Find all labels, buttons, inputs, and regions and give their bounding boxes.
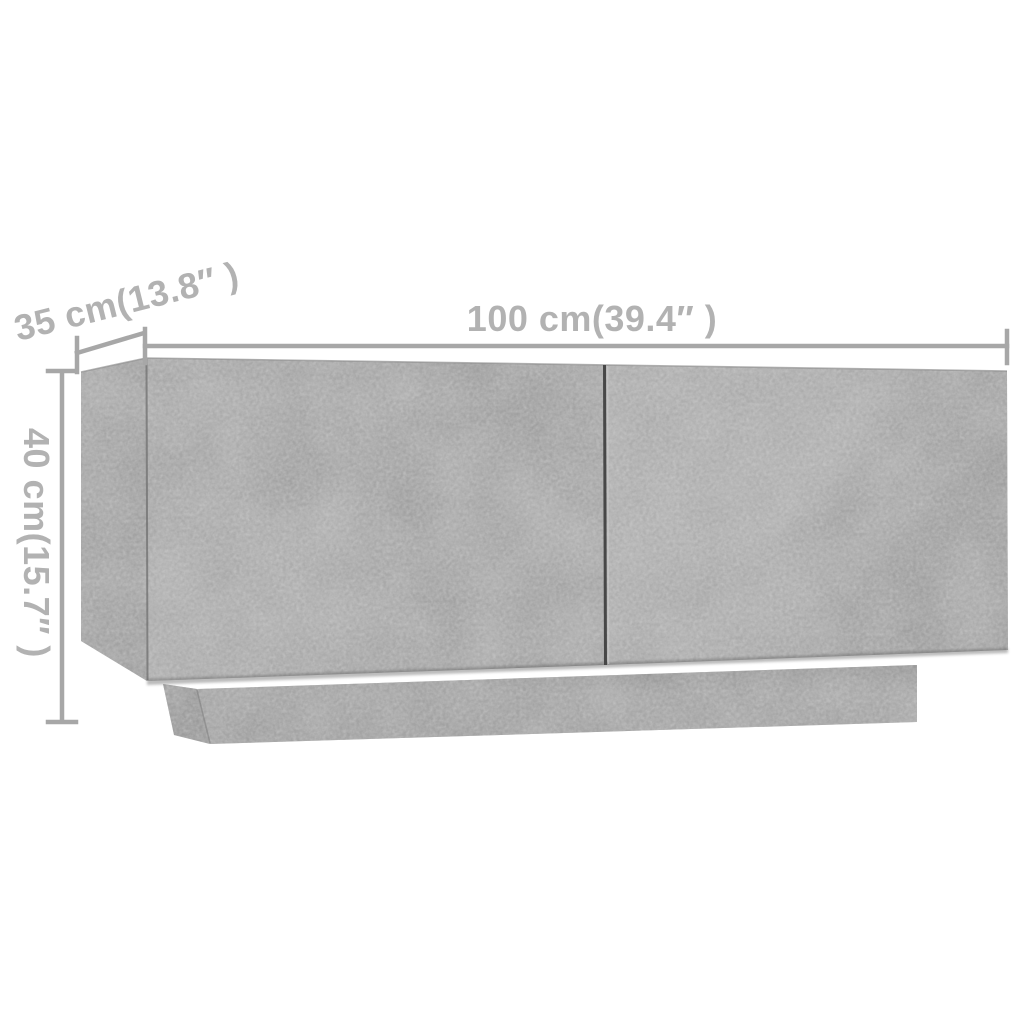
height-dimension-label: 40 cm(15.7″ ) (16, 428, 57, 658)
cabinet-front-left-corner-edge (147, 359, 148, 680)
concrete-mottling (60, 305, 1020, 760)
width-dimension-label: 100 cm(39.4″ ) (467, 298, 717, 339)
height-dimension: 40 cm(15.7″ ) (16, 371, 76, 722)
door-divider-gap (605, 365, 606, 665)
product-diagram: 100 cm(39.4″ ) 35 cm(13.8″ ) 40 cm(15.7″… (0, 0, 1024, 1024)
depth-dimension-label: 35 cm(13.8″ ) (10, 253, 243, 348)
door-divider-highlight (608, 366, 609, 664)
tv-cabinet (60, 305, 1020, 760)
depth-dimension: 35 cm(13.8″ ) (10, 253, 243, 372)
width-dimension: 100 cm(39.4″ ) (145, 298, 1007, 363)
depth-dimension-line (77, 333, 144, 353)
dimension-diagram-canvas: 100 cm(39.4″ ) 35 cm(13.8″ ) 40 cm(15.7″… (0, 0, 1024, 1024)
